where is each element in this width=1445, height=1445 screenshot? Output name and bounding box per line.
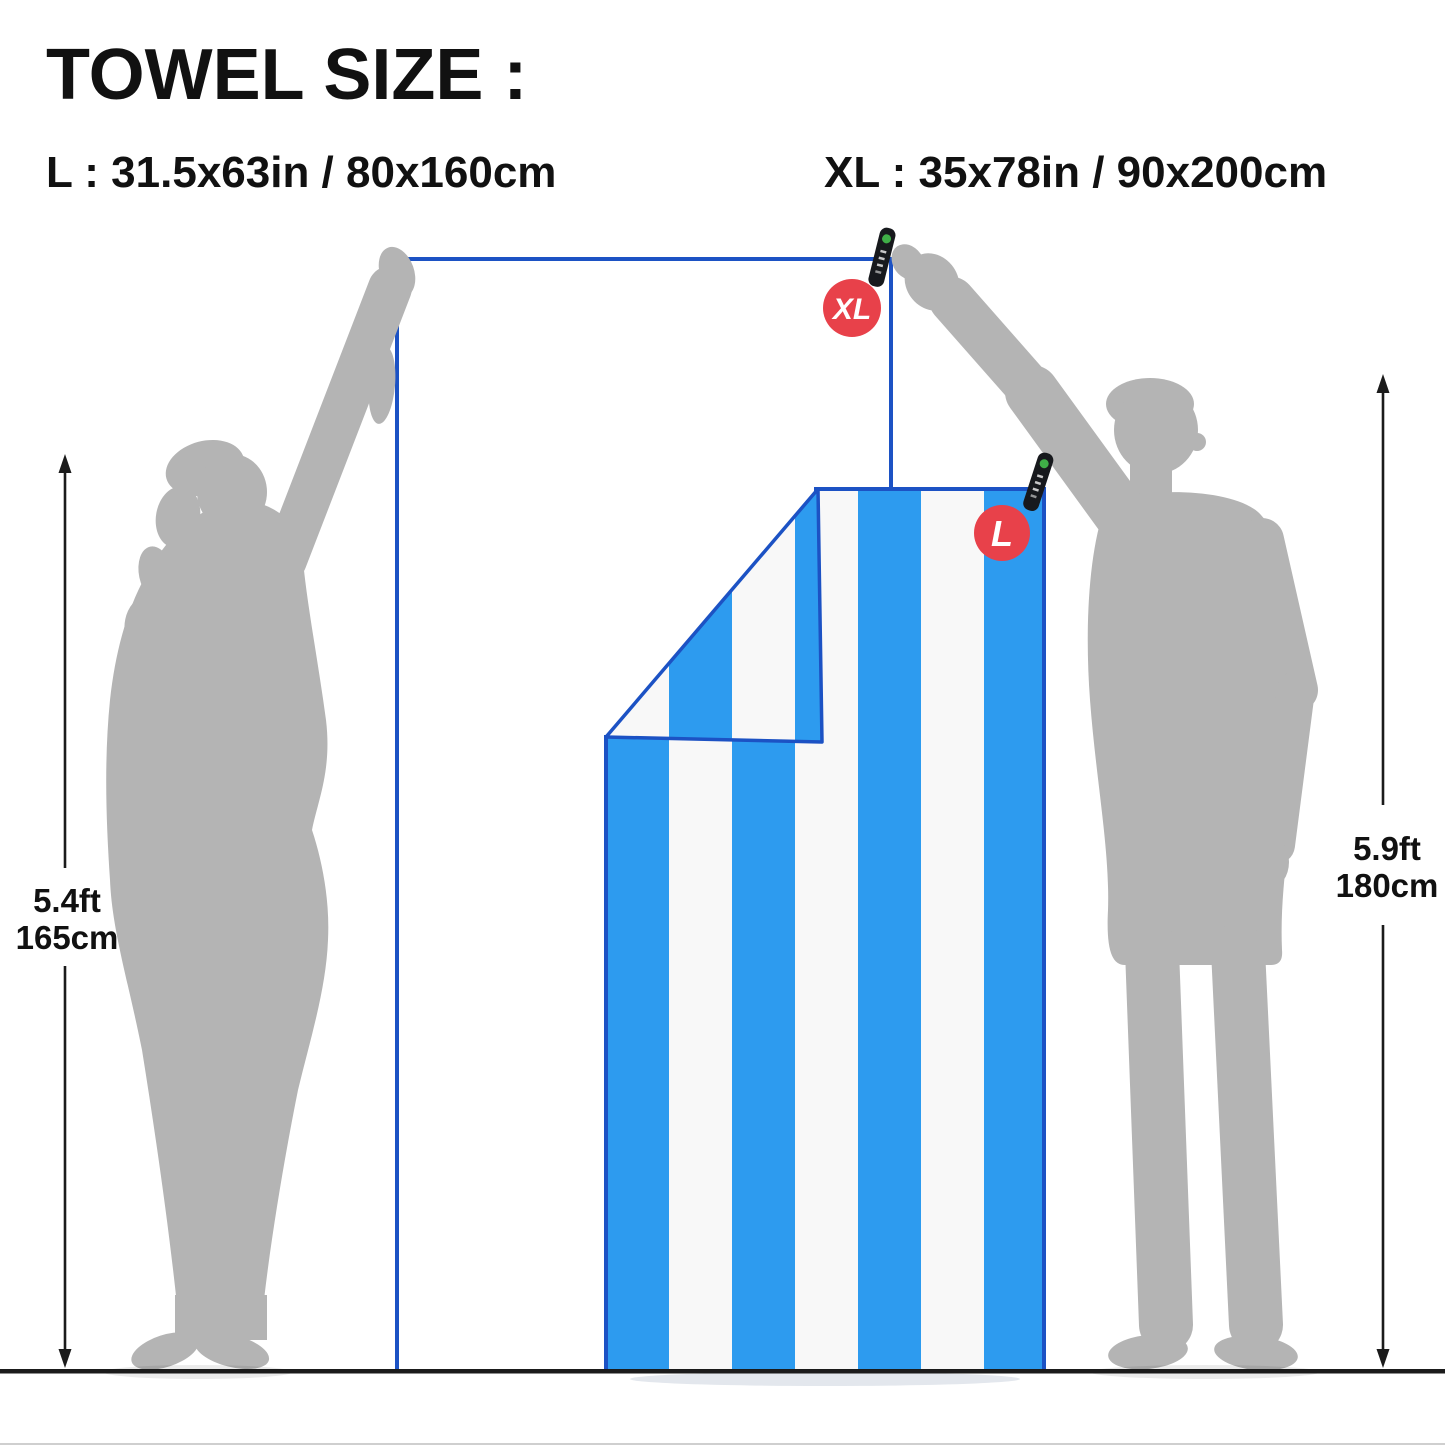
page-title: TOWEL SIZE : [46, 34, 527, 116]
l-towel-folded-corner [606, 489, 822, 742]
infographic-root: XL L TOWEL SIZE : L : 31.5x63in / 80x160… [0, 0, 1445, 1445]
female-silhouette [106, 242, 422, 1377]
scene-graphic: XL L [0, 0, 1445, 1445]
size-label-l: L : 31.5x63in / 80x160cm [46, 148, 556, 198]
l-badge-label: L [991, 513, 1013, 554]
l-towel [606, 489, 1047, 1373]
l-size-badge: L [974, 505, 1030, 561]
right-height-label: 5.9ft 180cm [1322, 830, 1445, 904]
xl-badge-label: XL [831, 293, 871, 326]
left-height-cm: 165cm [2, 919, 132, 956]
right-height-cm: 180cm [1322, 867, 1445, 904]
left-height-feet: 5.4ft [2, 882, 132, 919]
left-height-label: 5.4ft 165cm [2, 882, 132, 956]
size-label-xl: XL : 35x78in / 90x200cm [824, 148, 1327, 198]
ground-line [0, 1369, 1445, 1374]
right-height-feet: 5.9ft [1322, 830, 1445, 867]
l-hang-tag-icon [1021, 451, 1055, 513]
xl-size-badge: XL [823, 279, 881, 337]
